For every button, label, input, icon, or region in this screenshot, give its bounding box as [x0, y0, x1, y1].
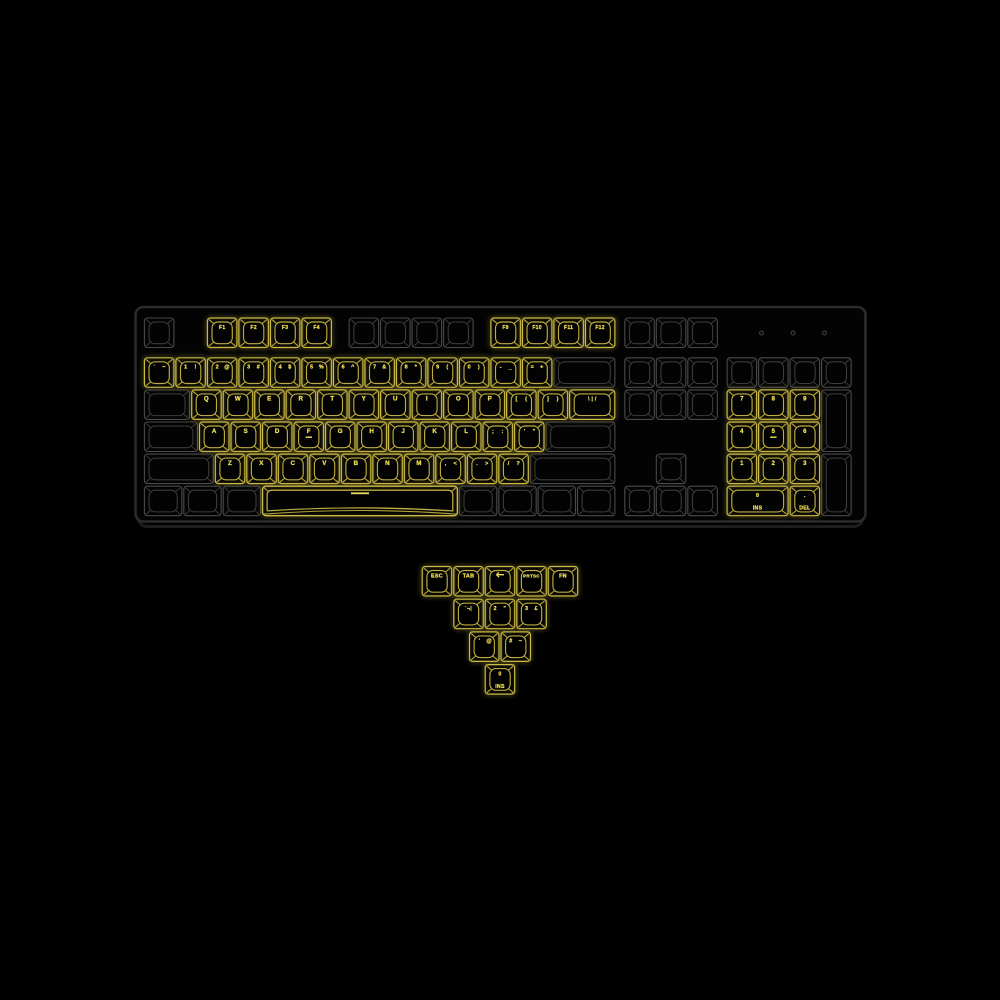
svg-text:G: G	[338, 428, 343, 435]
svg-text:P: P	[488, 396, 492, 403]
svg-text:F4: F4	[313, 325, 319, 331]
svg-text:#: #	[257, 365, 260, 371]
svg-text:2: 2	[216, 365, 219, 371]
svg-text:E: E	[267, 396, 271, 403]
svg-text:D: D	[275, 428, 280, 435]
svg-text:^: ^	[351, 365, 355, 371]
svg-text:5: 5	[772, 429, 776, 435]
svg-text:F10: F10	[532, 325, 542, 331]
svg-text:X: X	[259, 460, 264, 467]
svg-text:A: A	[212, 428, 217, 435]
svg-text:&: &	[382, 365, 386, 371]
svg-text:F9: F9	[502, 325, 508, 331]
svg-text:M: M	[416, 460, 421, 467]
svg-text:J: J	[401, 428, 405, 435]
svg-text:/: /	[508, 461, 510, 467]
svg-text:0: 0	[468, 365, 471, 371]
svg-text:_: _	[508, 365, 513, 371]
svg-text:O: O	[456, 396, 461, 403]
svg-text:@: @	[486, 639, 492, 645]
svg-text:3: 3	[803, 461, 807, 467]
svg-text:<: <	[454, 461, 457, 467]
svg-text:?: ?	[517, 461, 521, 467]
svg-text:H: H	[369, 428, 374, 435]
svg-text:2: 2	[772, 461, 776, 467]
svg-text:S: S	[244, 428, 248, 435]
svg-text:V: V	[322, 460, 327, 467]
svg-text:0: 0	[498, 671, 501, 677]
svg-text:): )	[478, 365, 480, 371]
svg-text:9: 9	[436, 365, 439, 371]
svg-text:5: 5	[310, 365, 313, 371]
svg-text:6: 6	[342, 365, 345, 371]
svg-text:U: U	[393, 396, 398, 403]
svg-text:F12: F12	[595, 325, 605, 331]
svg-text:$: $	[288, 365, 291, 371]
svg-text:PRTSC: PRTSC	[523, 573, 540, 578]
svg-text:C: C	[291, 460, 296, 467]
svg-text:%: %	[319, 365, 324, 371]
svg-text:!: !	[194, 365, 196, 371]
svg-text:Z: Z	[228, 460, 232, 467]
svg-text:;: ;	[492, 429, 494, 435]
svg-text:': '	[479, 639, 481, 645]
svg-text:4: 4	[279, 365, 282, 371]
svg-text:-: -	[500, 365, 502, 371]
svg-text:3: 3	[247, 365, 250, 371]
svg-text:7: 7	[373, 365, 376, 371]
svg-text:~: ~	[519, 639, 522, 645]
svg-text:K: K	[432, 428, 437, 435]
svg-text:FN: FN	[559, 573, 567, 579]
svg-text:F1: F1	[219, 325, 225, 331]
svg-text:#: #	[509, 639, 512, 645]
svg-text:L: L	[464, 428, 468, 435]
svg-text:F: F	[307, 428, 311, 435]
svg-text:Q: Q	[204, 396, 209, 403]
svg-text:`: `	[153, 365, 155, 371]
svg-text:W: W	[235, 396, 241, 403]
svg-text:B: B	[354, 460, 359, 467]
svg-text:(: (	[446, 365, 448, 371]
svg-text:DEL: DEL	[799, 506, 811, 512]
svg-text:8: 8	[772, 397, 776, 403]
svg-text:@: @	[224, 365, 230, 371]
svg-text:=: =	[531, 365, 534, 371]
svg-text::: :	[502, 429, 504, 435]
svg-text:INS: INS	[753, 506, 763, 512]
svg-text:`¬|: `¬|	[465, 606, 472, 612]
svg-text:8: 8	[405, 365, 408, 371]
svg-text:Y: Y	[362, 396, 367, 403]
svg-text:2: 2	[494, 606, 497, 612]
svg-text:>: >	[485, 461, 488, 467]
svg-text:,: ,	[445, 461, 447, 467]
svg-text:9: 9	[803, 397, 807, 403]
svg-text:": "	[503, 606, 506, 612]
svg-text:]: ]	[547, 397, 549, 403]
svg-text:~: ~	[162, 365, 165, 371]
svg-text:INS: INS	[495, 684, 505, 690]
svg-text:': '	[524, 429, 526, 435]
svg-text:{: {	[525, 397, 527, 403]
svg-text:+: +	[540, 365, 543, 371]
svg-text:[: [	[516, 397, 518, 403]
svg-text:.: .	[476, 461, 478, 467]
svg-text:\ | /: \ | /	[588, 397, 597, 403]
svg-text:0: 0	[756, 493, 759, 499]
svg-text:£: £	[535, 606, 538, 612]
svg-text:R: R	[299, 396, 304, 403]
svg-text:TAB: TAB	[463, 573, 475, 579]
svg-text:I: I	[426, 396, 428, 403]
svg-text:F2: F2	[250, 325, 256, 331]
svg-text:.: .	[804, 493, 806, 499]
svg-text:3: 3	[525, 606, 528, 612]
svg-text:N: N	[385, 460, 390, 467]
svg-text:F11: F11	[564, 325, 573, 331]
svg-text:1: 1	[184, 365, 187, 371]
svg-text:6: 6	[803, 429, 807, 435]
svg-text:": "	[533, 429, 536, 435]
svg-text:ESC: ESC	[431, 573, 443, 579]
svg-text:4: 4	[740, 429, 744, 435]
svg-text:1: 1	[740, 461, 744, 467]
svg-text:T: T	[330, 396, 334, 403]
svg-text:F3: F3	[282, 325, 288, 331]
svg-text:7: 7	[740, 397, 744, 403]
